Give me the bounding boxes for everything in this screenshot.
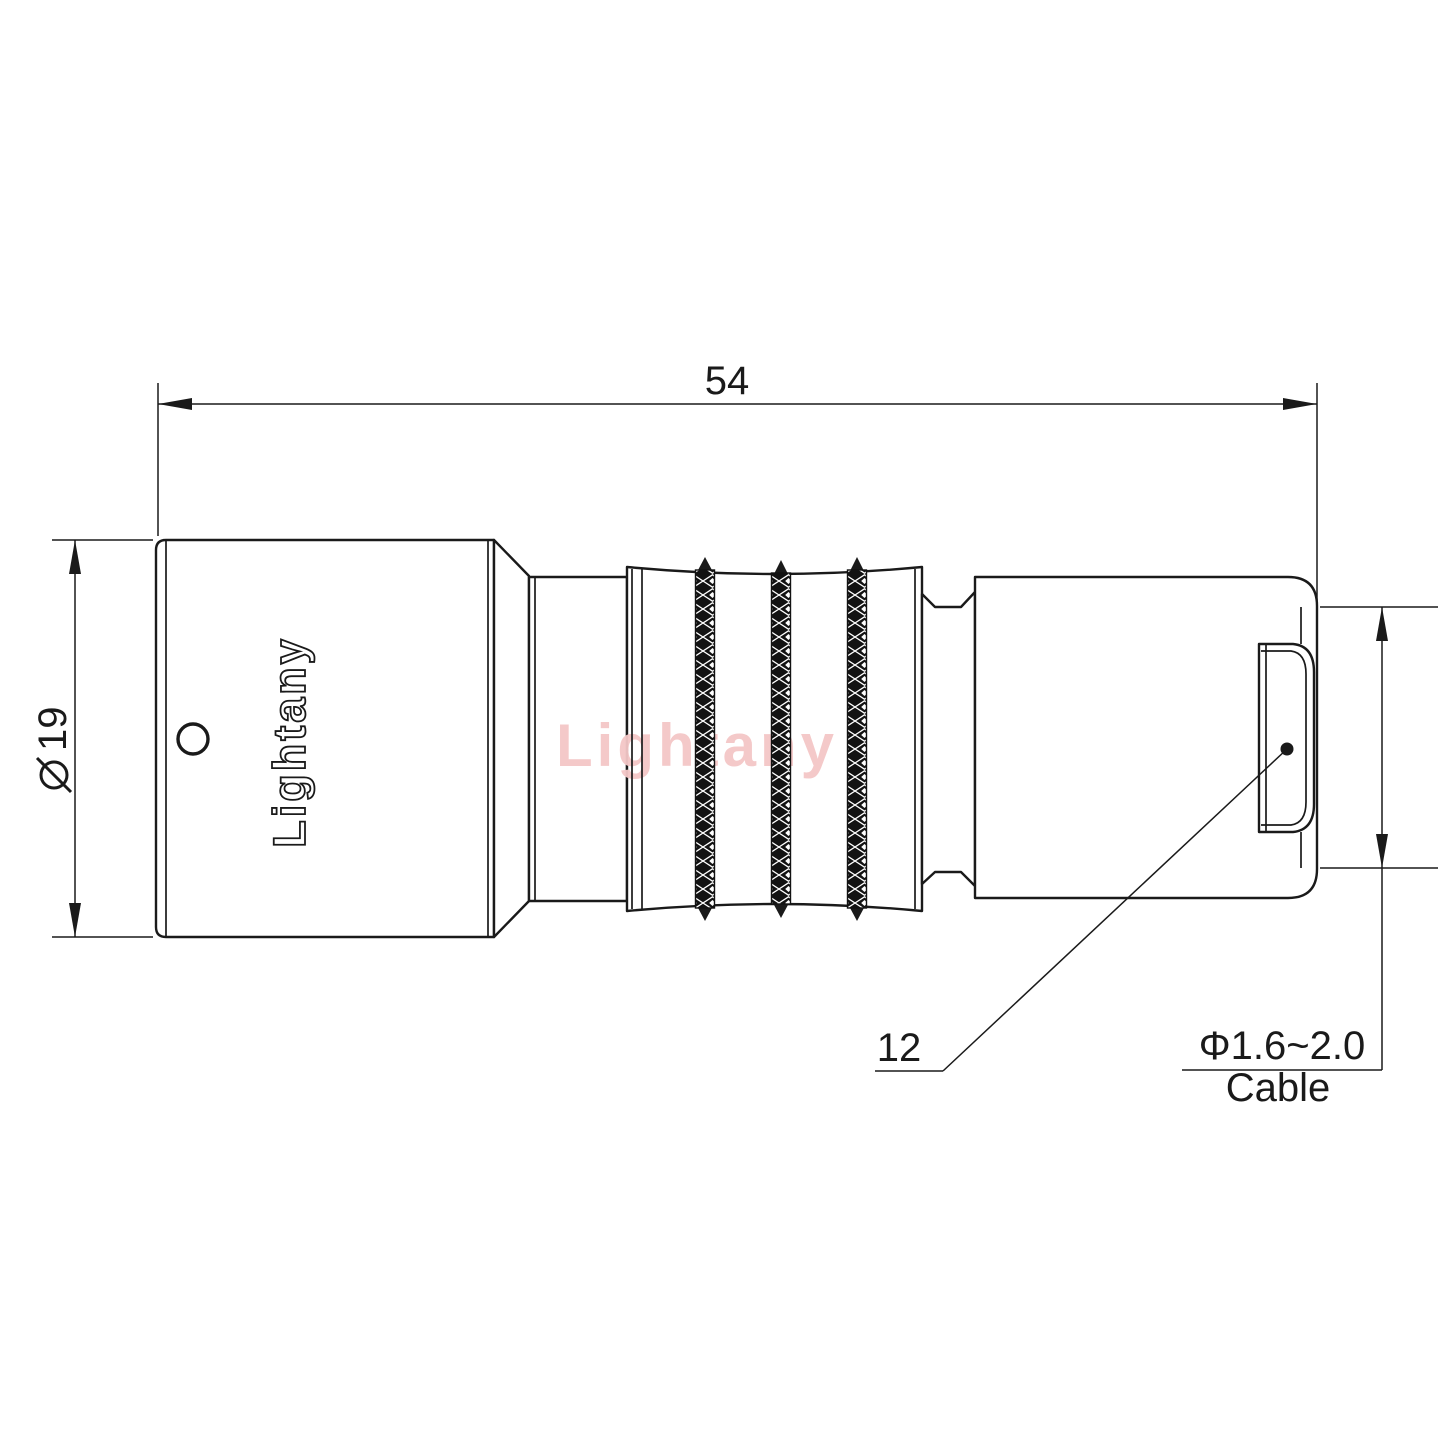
dimension-label-12: 12 [877, 1026, 922, 1070]
arrowhead-right [1283, 398, 1317, 410]
arrowhead-down [69, 903, 81, 937]
dimension-rear-diameter [1320, 607, 1438, 1070]
groove [922, 592, 975, 886]
cable-bushing [1259, 644, 1314, 832]
arrowhead-up [1376, 607, 1388, 641]
arrowhead-up [69, 540, 81, 574]
cable-spec-label: Φ1.6~2.0 [1199, 1024, 1365, 1068]
knurl-band [848, 557, 867, 921]
connector-technical-drawing: Lightany [0, 0, 1440, 1440]
drawing-canvas: Lightany [0, 0, 1440, 1440]
cable-annotation: Φ1.6~2.0 Cable [1182, 1024, 1382, 1110]
diameter-label-group: 19 [31, 707, 75, 793]
dimension-label-19: 19 [31, 707, 75, 752]
brand-engraving: Lightany [264, 636, 315, 848]
taper-ring [494, 540, 529, 937]
arrowhead-down [1376, 834, 1388, 868]
dimension-front-diameter: 19 [31, 540, 153, 937]
knurl-band [696, 557, 715, 921]
arrowhead-left [158, 398, 192, 410]
dimension-label-54: 54 [705, 359, 750, 403]
knurl-band [772, 560, 791, 918]
cable-caption-label: Cable [1226, 1066, 1331, 1110]
